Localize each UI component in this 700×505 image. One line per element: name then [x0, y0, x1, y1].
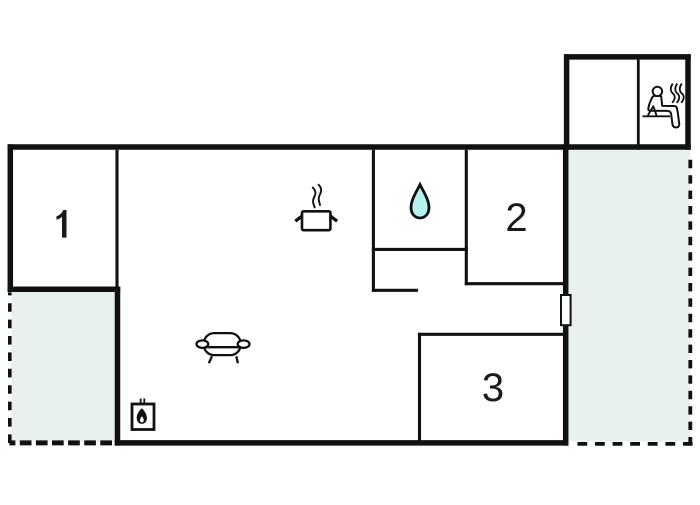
- svg-text:2: 2: [505, 196, 527, 240]
- svg-text:3: 3: [482, 366, 504, 410]
